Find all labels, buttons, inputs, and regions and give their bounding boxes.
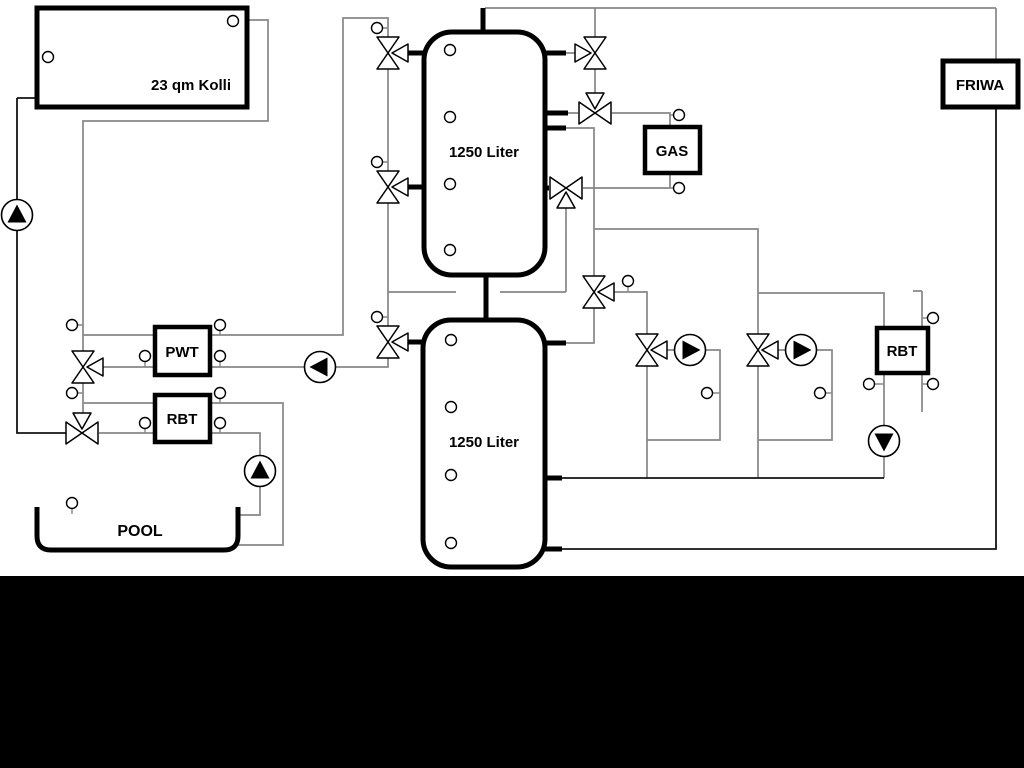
pump-solar-icon [2, 200, 33, 231]
three-way-valve-tank-mid-left [377, 171, 408, 203]
sensor-pool-icon [67, 498, 78, 509]
sensor-tank-upper-4-icon [445, 245, 456, 256]
solar-collector-label: 23 qm Kolli [151, 77, 231, 94]
pump-pwt-icon [305, 352, 336, 383]
sensor-tank-lower-3-icon [446, 470, 457, 481]
three-way-valve-pool [66, 413, 98, 444]
sensor-rbt-in-icon [67, 388, 78, 399]
three-way-valve-pwt [72, 351, 103, 383]
three-way-valve-gas-supply [579, 93, 611, 124]
sensor-tank-left-mid-icon [372, 157, 383, 168]
three-way-valve-mixer-circuit-1 [636, 334, 667, 366]
friwa-box: FRIWA [943, 61, 1018, 107]
sensor-pwt-in-icon [67, 320, 78, 331]
rbt-left-box: RBT [155, 395, 210, 442]
sensor-circuit-2-icon [815, 388, 826, 399]
friwa-label: FRIWA [956, 77, 1004, 94]
buffer-tank-lower: 1250 Liter [423, 320, 545, 567]
buffer-tank-upper-label: 1250 Liter [449, 144, 519, 161]
sensor-circuit-1-icon [702, 388, 713, 399]
bottom-black-bar [0, 576, 1024, 768]
sensor-tank-lower-1-icon [446, 335, 457, 346]
pump-pool-icon [245, 456, 276, 487]
sensor-rbt-top-right-icon [215, 388, 226, 399]
sensor-pwt-left-icon [140, 351, 151, 362]
rbt-right-box: RBT [877, 328, 928, 373]
pool-basin: POOL [37, 507, 238, 550]
sensor-tank-upper-3-icon [445, 179, 456, 190]
pump-circuit-2-icon [786, 335, 817, 366]
pwt-heat-exchanger-box: PWT [155, 327, 210, 375]
three-way-valve-tank-lower-left [377, 326, 408, 358]
three-way-valve-tank-top-left [377, 37, 408, 69]
sensor-collector-icon [43, 52, 54, 63]
sensor-collector-out-icon [228, 16, 239, 27]
three-way-valve-gas-return [550, 177, 582, 208]
hydraulic-scheme-page: 23 qm Kolli 1250 Liter 1250 Liter GAS FR… [0, 0, 1024, 768]
rbt-right-label: RBT [887, 343, 918, 360]
three-way-valve-heating-supply [583, 276, 614, 308]
three-way-valve-tank-top-right [575, 37, 606, 69]
sensor-rbt-left-icon [140, 418, 151, 429]
gas-boiler-box: GAS [645, 127, 700, 173]
sensor-cold-line-bottom-icon [928, 379, 939, 390]
sensor-tank-upper-2-icon [445, 112, 456, 123]
sensor-rbt-bottom-right-icon [215, 418, 226, 429]
sensor-cold-line-top-icon [928, 313, 939, 324]
sensor-pwt-bottom-right-icon [215, 351, 226, 362]
rbt-left-label: RBT [167, 411, 198, 428]
sensor-tank-lower-2-icon [446, 402, 457, 413]
pwt-label: PWT [165, 344, 198, 361]
pump-rbt-right-icon [869, 426, 900, 457]
sensor-gas-top-icon [674, 110, 685, 121]
sensor-tank-upper-1-icon [445, 45, 456, 56]
buffer-tank-upper: 1250 Liter [424, 32, 545, 275]
sensor-heating-supply-icon [623, 276, 634, 287]
sensor-tank-lower-4-icon [446, 538, 457, 549]
gas-boiler-label: GAS [656, 143, 689, 160]
buffer-tank-lower-label: 1250 Liter [449, 434, 519, 451]
sensor-tank-left-low-icon [372, 312, 383, 323]
three-way-valve-mixer-circuit-2 [747, 334, 778, 366]
solar-collector-box: 23 qm Kolli [37, 8, 247, 107]
sensor-gas-bottom-icon [674, 183, 685, 194]
hydraulic-scheme-diagram: 23 qm Kolli 1250 Liter 1250 Liter GAS FR… [0, 0, 1024, 768]
sensor-rbt-right-icon [864, 379, 875, 390]
sensor-pwt-top-right-icon [215, 320, 226, 331]
pump-circuit-1-icon [675, 335, 706, 366]
pool-label: POOL [117, 523, 163, 540]
sensor-solar-line-icon [372, 23, 383, 34]
